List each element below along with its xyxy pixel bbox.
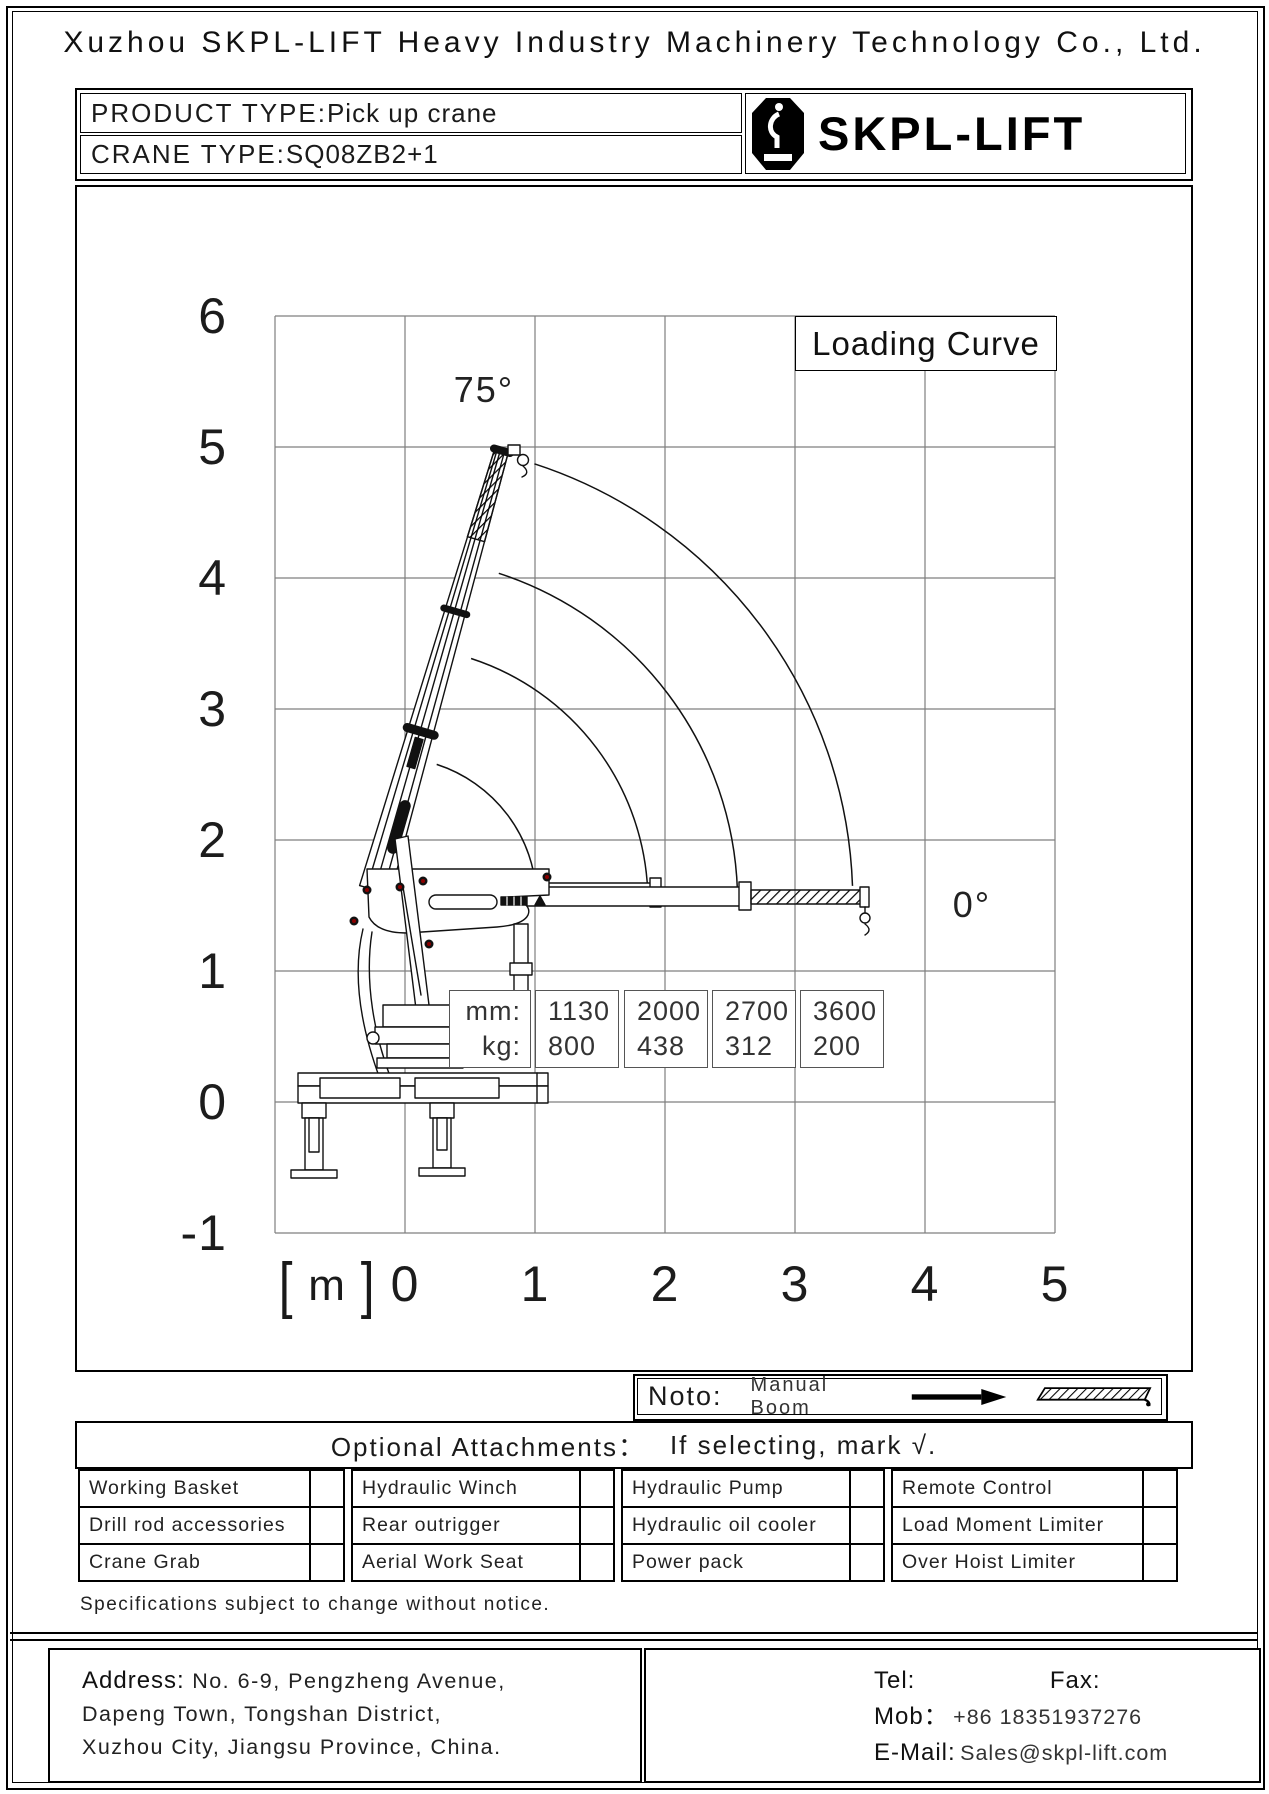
company-title: Xuzhou SKPL-LIFT Heavy Industry Machiner… [0, 26, 1269, 60]
attachment-checkbox[interactable] [579, 1543, 615, 1582]
crane-type-row: CRANE TYPE:SQ08ZB2+1 [80, 135, 742, 174]
x-tick-label: 1 [495, 1255, 575, 1313]
extension-value: 2000 [625, 994, 707, 1029]
email-value: Sales@skpl-lift.com [960, 1741, 1168, 1765]
x-tick-label: 2 [625, 1255, 705, 1313]
tel-label: Tel: [874, 1667, 915, 1694]
brand-logo-cell: SKPL-LIFT [745, 93, 1186, 174]
load-table-kg-label: kg: [450, 1029, 530, 1064]
brand-name: SKPL-LIFT [818, 106, 1085, 161]
manual-boom-symbol-icon [1036, 1384, 1161, 1410]
mob-label: Mob： [874, 1703, 949, 1730]
attachment-label: Working Basket [78, 1469, 311, 1508]
attachment-label: Hydraulic oil cooler [621, 1506, 851, 1545]
attachments-row: Crane GrabAerial Work SeatPower packOver… [78, 1543, 1191, 1582]
x-tick-label: 4 [885, 1255, 965, 1313]
y-tick-label: -1 [117, 1200, 227, 1266]
attachment-checkbox[interactable] [579, 1469, 615, 1508]
attachment-label: Rear outrigger [351, 1506, 581, 1545]
extension-value: 1130 [536, 994, 618, 1029]
y-tick-label: 1 [117, 938, 227, 1004]
capacity-value: 312 [713, 1029, 795, 1064]
attachments-header: Optional Attachments： If selecting, mark… [75, 1421, 1193, 1469]
attachments-table: Working BasketHydraulic WinchHydraulic P… [78, 1469, 1191, 1582]
capacity-value: 200 [801, 1029, 883, 1064]
attachment-checkbox[interactable] [1142, 1506, 1178, 1545]
note-box: Noto: Manual Boom [633, 1374, 1168, 1421]
extension-value: 2700 [713, 994, 795, 1029]
attachment-label: Drill rod accessories [78, 1506, 311, 1545]
contact-box: Tel: Fax: Mob： +86 18351937276 E-Mail: S… [644, 1648, 1261, 1783]
attachments-title: Optional Attachments： [331, 1427, 646, 1464]
capacity-value: 800 [536, 1029, 618, 1064]
axis-unit-label: [ m ] [277, 1250, 376, 1321]
chart-title: Loading Curve [795, 316, 1057, 371]
product-info-box: PRODUCT TYPE:Pick up crane CRANE TYPE:SQ… [75, 88, 1193, 181]
x-tick-label: 3 [755, 1255, 835, 1313]
attachment-checkbox[interactable] [579, 1506, 615, 1545]
load-curve-arc [471, 659, 648, 894]
load-table-col-4: 3600 200 [800, 990, 884, 1068]
product-type-label: PRODUCT TYPE: [81, 98, 327, 129]
arrow-icon [910, 1386, 1008, 1408]
load-table-mm-label: mm: [450, 994, 530, 1029]
unit-open-bracket: [ [279, 1250, 293, 1321]
attachment-checkbox[interactable] [849, 1506, 885, 1545]
attachment-checkbox[interactable] [309, 1469, 345, 1508]
crane-type-value: SQ08ZB2+1 [286, 139, 439, 170]
unit-text: m [294, 1261, 359, 1311]
brand-logo-icon [746, 94, 810, 174]
loading-curve-chart: Loading Curve 75° 0° mm: kg: 1130 800 20… [77, 187, 1191, 1370]
extension-value: 3600 [801, 994, 883, 1029]
note-label: Noto: [648, 1381, 723, 1412]
x-tick-label: 5 [1015, 1255, 1095, 1313]
disclaimer-text: Specifications subject to change without… [80, 1594, 550, 1616]
load-table-col-2: 2000 438 [624, 990, 708, 1068]
attachment-checkbox[interactable] [1142, 1543, 1178, 1582]
address-box: Address: No. 6-9, Pengzheng Avenue, Dape… [48, 1648, 642, 1783]
min-angle-label: 0° [922, 884, 1022, 926]
email-label: E-Mail: [874, 1739, 956, 1766]
attachment-label: Load Moment Limiter [891, 1506, 1144, 1545]
note-box-inner: Noto: Manual Boom [637, 1378, 1162, 1415]
datasheet-page: { "header": { "company_title": "Xuzhou S… [0, 0, 1269, 1794]
footer-separator [10, 1632, 1258, 1641]
attachment-checkbox[interactable] [849, 1469, 885, 1508]
attachments-row: Drill rod accessoriesRear outriggerHydra… [78, 1506, 1191, 1545]
attachment-label: Remote Control [891, 1469, 1144, 1508]
attachment-checkbox[interactable] [309, 1506, 345, 1545]
address-line-1: No. 6-9, Pengzheng Avenue, [192, 1669, 506, 1693]
y-tick-label: 0 [117, 1069, 227, 1135]
y-tick-label: 6 [117, 283, 227, 349]
attachments-row: Working BasketHydraulic WinchHydraulic P… [78, 1469, 1191, 1508]
y-tick-label: 5 [117, 414, 227, 480]
attachment-checkbox[interactable] [309, 1543, 345, 1582]
load-table-row-labels: mm: kg: [449, 990, 531, 1068]
address-label: Address: [82, 1667, 185, 1694]
product-type-value: Pick up crane [327, 98, 498, 129]
y-tick-label: 2 [117, 807, 227, 873]
load-table-col-3: 2700 312 [712, 990, 796, 1068]
attachment-label: Power pack [621, 1543, 851, 1582]
product-type-row: PRODUCT TYPE:Pick up crane [80, 93, 742, 133]
attachment-label: Over Hoist Limiter [891, 1543, 1144, 1582]
attachment-label: Hydraulic Pump [621, 1469, 851, 1508]
attachment-checkbox[interactable] [849, 1543, 885, 1582]
load-table-col-1: 1130 800 [535, 990, 619, 1068]
attachment-label: Crane Grab [78, 1543, 311, 1582]
load-curve-arcs [437, 464, 853, 897]
attachment-checkbox[interactable] [1142, 1469, 1178, 1508]
capacity-value: 438 [625, 1029, 707, 1064]
address-line-2: Dapeng Town, Tongshan District, [82, 1698, 640, 1731]
load-curve-arc [534, 464, 852, 886]
y-tick-label: 3 [117, 676, 227, 742]
address-line-3: Xuzhou City, Jiangsu Province, China. [82, 1731, 640, 1764]
crane-drawing [291, 445, 870, 1178]
attachment-label: Hydraulic Winch [351, 1469, 581, 1508]
fax-label: Fax: [1050, 1667, 1101, 1694]
crane-type-label: CRANE TYPE: [81, 139, 286, 170]
loading-curve-panel: Loading Curve 75° 0° mm: kg: 1130 800 20… [75, 185, 1193, 1372]
mob-value: +86 18351937276 [953, 1705, 1142, 1729]
attachments-instruction: If selecting, mark √. [670, 1430, 937, 1461]
y-tick-label: 4 [117, 545, 227, 611]
note-text: Manual Boom [751, 1374, 881, 1420]
max-angle-label: 75° [429, 369, 539, 411]
x-tick-label: 0 [365, 1255, 445, 1313]
attachment-label: Aerial Work Seat [351, 1543, 581, 1582]
